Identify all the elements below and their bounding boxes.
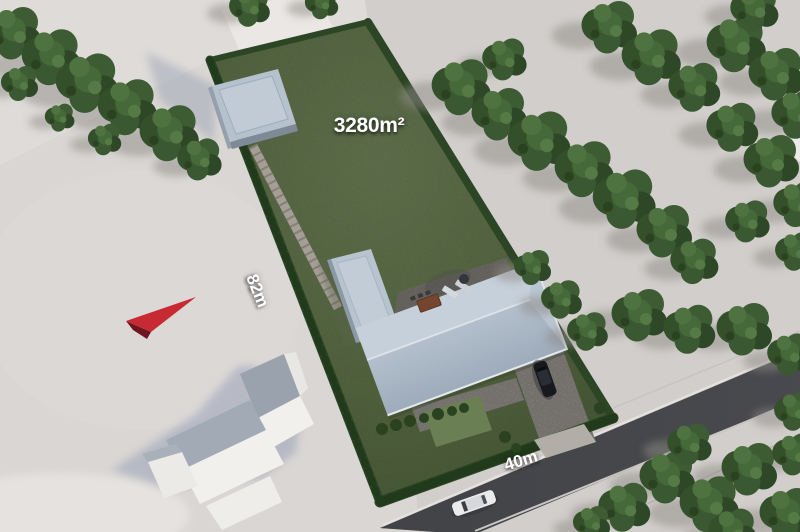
bush [376,423,388,435]
bush [459,403,469,413]
bush [594,402,606,414]
bush [390,419,402,431]
bush [404,415,416,427]
grill [459,274,469,284]
bush [511,443,521,453]
site-plan-render: 3280m² 82m 40m [0,0,800,532]
aerial-render-canvas [0,0,800,532]
bush [432,408,444,420]
bush [499,431,511,443]
bush [419,413,429,423]
bush [447,406,457,416]
